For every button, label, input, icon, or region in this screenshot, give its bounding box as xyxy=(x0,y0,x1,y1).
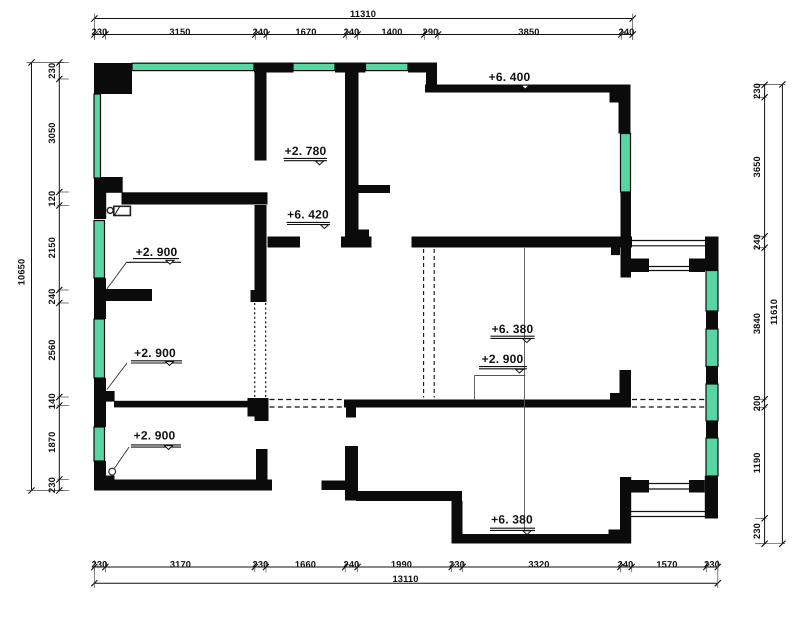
svg-text:+6. 380: +6. 380 xyxy=(492,322,534,336)
svg-text:+2. 900: +2. 900 xyxy=(134,346,176,360)
svg-text:1660: 1660 xyxy=(295,559,316,569)
svg-text:1870: 1870 xyxy=(47,432,57,453)
svg-text:240: 240 xyxy=(618,559,634,569)
svg-text:+2. 900: +2. 900 xyxy=(482,352,524,366)
svg-text:10650: 10650 xyxy=(17,259,27,286)
svg-text:2150: 2150 xyxy=(47,237,57,258)
svg-text:3150: 3150 xyxy=(169,27,190,37)
svg-text:120: 120 xyxy=(47,191,57,207)
svg-text:+6. 400: +6. 400 xyxy=(489,70,531,84)
svg-text:+2. 780: +2. 780 xyxy=(285,144,327,158)
svg-text:230: 230 xyxy=(752,523,762,539)
svg-text:1400: 1400 xyxy=(381,27,402,37)
svg-text:240: 240 xyxy=(344,27,360,37)
svg-text:+6. 380: +6. 380 xyxy=(491,512,533,526)
svg-text:+2. 900: +2. 900 xyxy=(136,245,178,259)
svg-text:1990: 1990 xyxy=(391,559,412,569)
svg-text:230: 230 xyxy=(253,559,269,569)
svg-text:240: 240 xyxy=(47,289,57,305)
svg-text:230: 230 xyxy=(752,83,762,99)
svg-text:230: 230 xyxy=(92,27,108,37)
svg-text:2560: 2560 xyxy=(47,339,57,360)
svg-text:13110: 13110 xyxy=(392,574,418,584)
svg-text:200: 200 xyxy=(752,395,762,411)
svg-text:3050: 3050 xyxy=(47,122,57,143)
svg-text:3850: 3850 xyxy=(518,27,539,37)
svg-text:3840: 3840 xyxy=(752,313,762,334)
svg-text:11610: 11610 xyxy=(769,299,779,325)
svg-text:230: 230 xyxy=(47,477,57,493)
svg-text:140: 140 xyxy=(47,393,57,409)
svg-text:230: 230 xyxy=(47,63,57,79)
svg-text:11310: 11310 xyxy=(350,9,376,19)
svg-text:1670: 1670 xyxy=(295,27,316,37)
svg-text:3650: 3650 xyxy=(752,156,762,177)
svg-text:3170: 3170 xyxy=(170,559,191,569)
svg-text:+6. 420: +6. 420 xyxy=(287,207,329,221)
svg-text:240: 240 xyxy=(253,27,269,37)
svg-text:240: 240 xyxy=(619,27,635,37)
svg-text:1190: 1190 xyxy=(752,452,762,473)
svg-text:240: 240 xyxy=(752,234,762,250)
svg-text:240: 240 xyxy=(344,559,360,569)
svg-text:230: 230 xyxy=(92,559,108,569)
svg-text:1570: 1570 xyxy=(656,559,677,569)
svg-text:+2. 900: +2. 900 xyxy=(134,428,176,442)
svg-text:230: 230 xyxy=(449,559,465,569)
svg-text:290: 290 xyxy=(423,27,439,37)
svg-text:3320: 3320 xyxy=(528,559,549,569)
